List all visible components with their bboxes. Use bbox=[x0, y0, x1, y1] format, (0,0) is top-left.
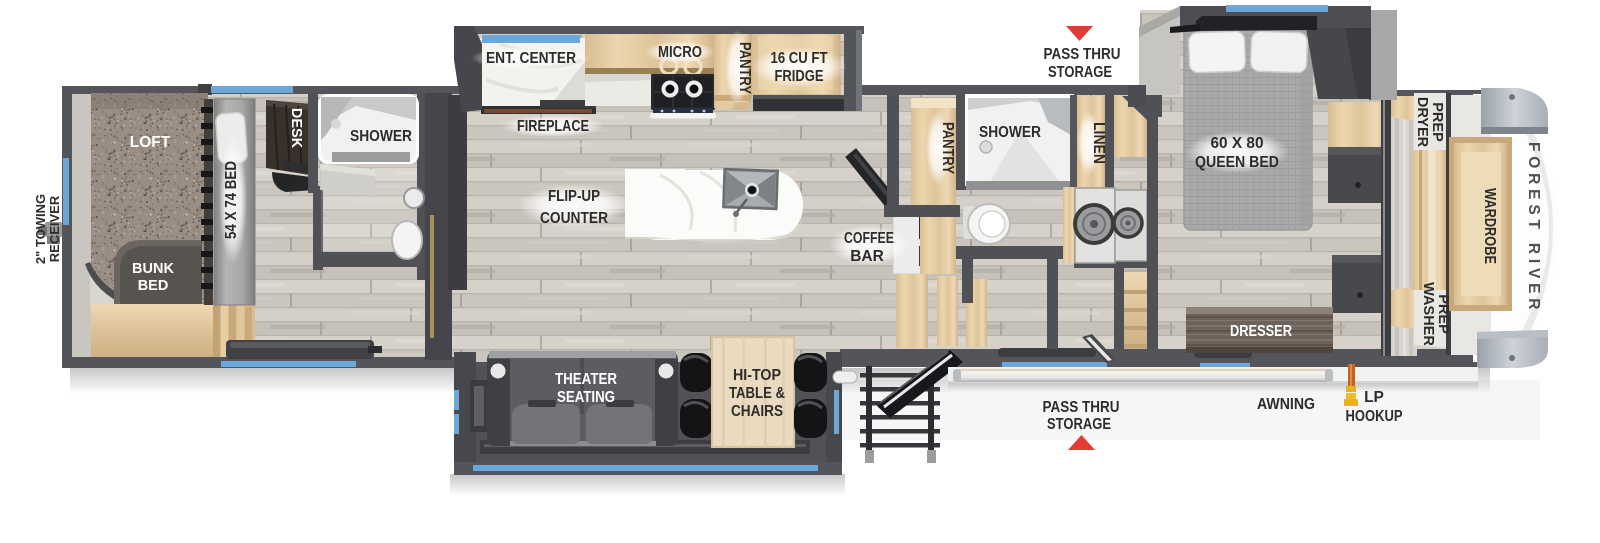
svg-text:BED: BED bbox=[138, 278, 169, 294]
svg-text:CHAIRS: CHAIRS bbox=[731, 403, 783, 420]
svg-text:SEATING: SEATING bbox=[557, 389, 615, 406]
svg-text:TABLE &: TABLE & bbox=[729, 385, 785, 402]
svg-text:AWNING: AWNING bbox=[1257, 396, 1315, 413]
svg-text:THEATER: THEATER bbox=[555, 371, 617, 388]
svg-text:WARDROBE: WARDROBE bbox=[1481, 188, 1498, 264]
svg-text:PANTRY: PANTRY bbox=[939, 122, 956, 175]
svg-text:PANTRY: PANTRY bbox=[736, 42, 753, 95]
svg-text:MICRO: MICRO bbox=[658, 44, 702, 61]
svg-text:2" TOWING: 2" TOWING bbox=[33, 194, 48, 264]
svg-text:SHOWER: SHOWER bbox=[350, 128, 412, 145]
svg-text:STORAGE: STORAGE bbox=[1048, 64, 1112, 81]
svg-text:FIREPLACE: FIREPLACE bbox=[517, 118, 589, 135]
svg-text:FRIDGE: FRIDGE bbox=[775, 68, 824, 85]
svg-text:FOREST RIVER: FOREST RIVER bbox=[1525, 142, 1542, 310]
svg-text:COFFEE: COFFEE bbox=[844, 230, 894, 247]
svg-text:54 X 74 BED: 54 X 74 BED bbox=[223, 161, 240, 239]
svg-text:BAR: BAR bbox=[850, 248, 884, 265]
svg-text:DESK: DESK bbox=[288, 108, 304, 149]
svg-text:LOFT: LOFT bbox=[130, 134, 171, 151]
svg-text:DRESSER: DRESSER bbox=[1230, 323, 1292, 340]
svg-text:DRYER: DRYER bbox=[1414, 97, 1430, 148]
svg-text:LP: LP bbox=[1364, 389, 1384, 406]
svg-text:WASHER: WASHER bbox=[1420, 282, 1436, 346]
svg-text:STORAGE: STORAGE bbox=[1047, 416, 1111, 433]
svg-text:PREP: PREP bbox=[1435, 294, 1451, 334]
svg-text:LINEN: LINEN bbox=[1090, 122, 1107, 164]
svg-text:FLIP-UP: FLIP-UP bbox=[548, 188, 600, 205]
svg-text:16 CU FT: 16 CU FT bbox=[771, 50, 828, 67]
svg-text:ENT. CENTER: ENT. CENTER bbox=[486, 50, 576, 67]
svg-text:QUEEN BED: QUEEN BED bbox=[1195, 154, 1279, 171]
svg-text:SHOWER: SHOWER bbox=[979, 124, 1041, 141]
svg-text:COUNTER: COUNTER bbox=[540, 210, 608, 227]
svg-text:HI-TOP: HI-TOP bbox=[733, 367, 781, 384]
svg-text:BUNK: BUNK bbox=[132, 261, 174, 277]
svg-text:RECEIVER: RECEIVER bbox=[47, 195, 62, 262]
svg-text:PREP: PREP bbox=[1429, 102, 1445, 142]
svg-text:60 X 80: 60 X 80 bbox=[1211, 135, 1264, 152]
svg-text:PASS THRU: PASS THRU bbox=[1043, 399, 1120, 416]
svg-text:PASS THRU: PASS THRU bbox=[1044, 46, 1121, 63]
svg-text:HOOKUP: HOOKUP bbox=[1346, 408, 1403, 425]
